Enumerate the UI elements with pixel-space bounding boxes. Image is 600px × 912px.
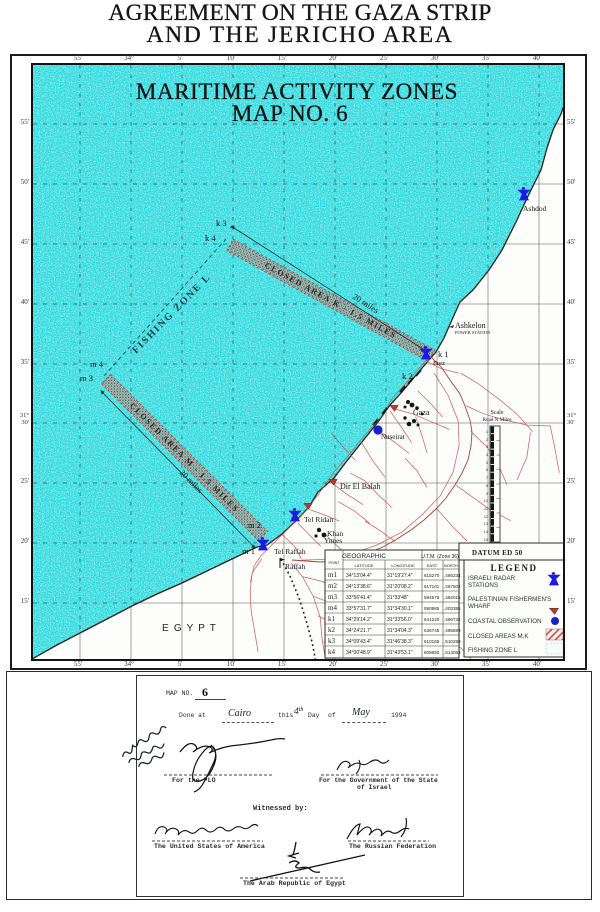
svg-text:34°24'21.7": 34°24'21.7" <box>346 628 372 634</box>
svg-text:31°46'38.3": 31°46'38.3" <box>387 639 413 645</box>
svg-text:31°43'53.1": 31°43'53.1" <box>387 650 413 656</box>
svg-text:Gaza: Gaza <box>413 408 430 417</box>
svg-text:9: 9 <box>486 492 488 496</box>
svg-text:LATITUDE: LATITUDE <box>354 563 373 568</box>
svg-text:EAST: EAST <box>427 563 438 568</box>
svg-text:2: 2 <box>486 438 488 442</box>
svg-text:8: 8 <box>486 484 488 488</box>
svg-text:GEOGRAPHIC: GEOGRAPHIC <box>342 553 386 560</box>
svg-text:k4: k4 <box>328 648 336 656</box>
svg-text:m 3: m 3 <box>80 373 93 383</box>
svg-text:590985: 590985 <box>424 606 440 611</box>
svg-text:610165: 610165 <box>424 639 440 644</box>
svg-text:31°20'08.2": 31°20'08.2" <box>387 584 413 590</box>
svg-text:Tel Raffah: Tel Raffah <box>274 547 306 556</box>
svg-text:Yunes: Yunes <box>324 536 342 545</box>
svg-text:Dir El Balah: Dir El Balah <box>340 482 380 491</box>
svg-text:Erez: Erez <box>433 360 445 367</box>
svg-text:Tel Ridan: Tel Ridan <box>304 515 334 524</box>
svg-text:STATIONS: STATIONS <box>468 582 498 589</box>
svg-text:Scale: Scale <box>491 410 504 416</box>
svg-text:13: 13 <box>484 522 488 526</box>
svg-text:1: 1 <box>486 430 488 434</box>
svg-text:WHARF: WHARF <box>468 603 491 610</box>
svg-text:k 3: k 3 <box>216 218 227 228</box>
svg-text:,510288: ,510288 <box>444 639 461 644</box>
svg-text:15: 15 <box>484 538 488 542</box>
svg-text:608650: 608650 <box>424 650 440 655</box>
svg-text:594575: 594575 <box>424 595 440 600</box>
svg-text:NORTH: NORTH <box>444 563 458 568</box>
svg-text:,403385: ,403385 <box>444 606 461 611</box>
svg-text:k3: k3 <box>328 637 336 645</box>
svg-text:CLOSED AREAS M,K: CLOSED AREAS M,K <box>468 633 529 640</box>
svg-text:m 4: m 4 <box>90 359 104 369</box>
svg-text:6: 6 <box>486 468 488 472</box>
svg-text:LEGEND: LEGEND <box>490 563 537 573</box>
svg-text:k1: k1 <box>328 615 336 623</box>
svg-text:Ashkelon: Ashkelon <box>455 321 486 330</box>
svg-text:4: 4 <box>486 453 488 457</box>
svg-text:31°33'48": 31°33'48" <box>387 595 409 601</box>
svg-text:MAP NO. 6: MAP NO. 6 <box>232 101 348 126</box>
svg-text:10: 10 <box>484 499 488 503</box>
svg-text:DATUM ED 50: DATUM ED 50 <box>472 549 523 557</box>
svg-text:k2: k2 <box>328 626 336 634</box>
svg-text:14: 14 <box>484 530 488 534</box>
svg-text:Raffah: Raffah <box>285 562 306 571</box>
svg-text:,495889: ,495889 <box>444 628 461 633</box>
svg-text:k 1: k 1 <box>438 349 449 359</box>
svg-text:,514053: ,514053 <box>444 650 461 655</box>
svg-text:31°34'04.3": 31°34'04.3" <box>387 628 413 634</box>
svg-text:,467502: ,467502 <box>444 584 461 589</box>
svg-text:PALESTINIAN FISHERMEN'S: PALESTINIAN FISHERMEN'S <box>468 596 551 603</box>
svg-text:Ashdod: Ashdod <box>523 204 547 213</box>
svg-text:34°09'43.4": 34°09'43.4" <box>346 639 372 645</box>
svg-text:12: 12 <box>484 515 488 519</box>
svg-text:FISHING ZONE L: FISHING ZONE L <box>468 647 518 654</box>
svg-text:m4: m4 <box>328 604 337 612</box>
svg-text:m 1: m 1 <box>242 546 255 556</box>
svg-text:m1: m1 <box>328 571 337 579</box>
svg-text:LONGITUDE: LONGITUDE <box>391 563 415 568</box>
svg-text:k 4: k 4 <box>205 233 216 243</box>
svg-text:E G Y P T: E G Y P T <box>162 623 217 634</box>
svg-text:Road N Miles: Road N Miles <box>482 417 511 423</box>
svg-text:5: 5 <box>486 461 488 465</box>
svg-text:U.T.M. (Zone 36): U.T.M. (Zone 36) <box>421 554 459 560</box>
svg-text:31°33'56.0": 31°33'56.0" <box>387 617 413 623</box>
svg-text:Nuseirat: Nuseirat <box>381 433 405 441</box>
svg-text:617101: 617101 <box>424 584 440 589</box>
svg-text:,466234: ,466234 <box>444 573 461 578</box>
svg-text:ISRAELI RADAR: ISRAELI RADAR <box>468 575 516 582</box>
svg-text:k 2: k 2 <box>402 371 413 381</box>
svg-text:m3: m3 <box>328 593 337 601</box>
svg-text:,496732: ,496732 <box>444 617 461 622</box>
svg-text:,482015: ,482015 <box>444 595 461 600</box>
svg-text:7: 7 <box>486 476 488 480</box>
svg-text:m2: m2 <box>328 582 337 590</box>
svg-text:31°19'27.4": 31°19'27.4" <box>387 573 413 579</box>
svg-text:615270: 615270 <box>424 573 440 578</box>
svg-text:34°13'04.4": 34°13'04.4" <box>346 573 372 579</box>
svg-text:11: 11 <box>484 507 488 511</box>
svg-text:636745: 636745 <box>424 628 440 633</box>
svg-text:COASTAL OBSERVATION: COASTAL OBSERVATION <box>468 618 542 625</box>
svg-text:31°34'30.1": 31°34'30.1" <box>387 606 413 612</box>
svg-text:m 2: m 2 <box>248 520 261 530</box>
svg-text:34°00'48.9": 34°00'48.9" <box>346 650 372 656</box>
svg-text:641220: 641220 <box>424 617 440 622</box>
svg-text:34°29'14.2": 34°29'14.2" <box>346 617 372 623</box>
svg-text:34°13'38.6": 34°13'38.6" <box>346 584 372 590</box>
svg-text:POINT: POINT <box>329 561 341 565</box>
svg-text:33°57'31.7": 33°57'31.7" <box>346 606 372 612</box>
svg-text:POWER STATION: POWER STATION <box>455 330 491 335</box>
svg-text:3: 3 <box>486 445 488 449</box>
svg-text:33°56'41.4": 33°56'41.4" <box>346 595 372 601</box>
